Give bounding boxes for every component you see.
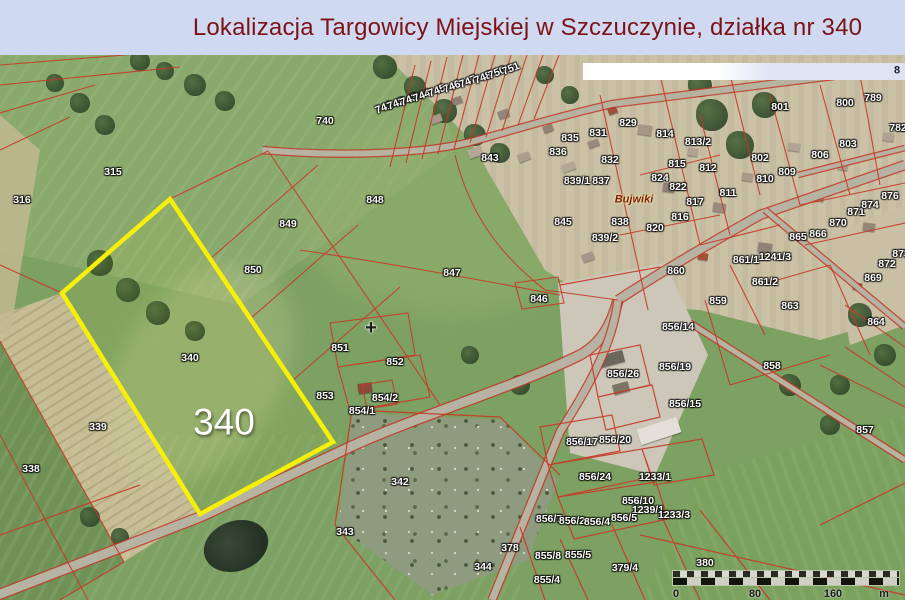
parcel-label: 817 <box>686 197 704 208</box>
parcel-label: 813/2 <box>685 137 711 148</box>
parcel-label: 856/24 <box>579 472 611 483</box>
parcel-label: 342 <box>391 477 409 488</box>
parcel-label: 751 <box>501 61 521 77</box>
parcel-label: 856/4 <box>584 517 610 528</box>
parcel-label: 856/26 <box>607 369 639 380</box>
parcel-label: 740 <box>316 116 334 127</box>
parcel-label: 846 <box>530 294 548 305</box>
parcel-label: 832 <box>601 155 619 166</box>
parcel-label: 874 <box>861 200 879 211</box>
place-label: Bujwiki <box>615 195 654 206</box>
parcel-label: 856/2 <box>559 516 585 527</box>
parcel-label: 861/1 <box>733 255 759 266</box>
parcel-label: 856/15 <box>669 399 701 410</box>
parcel-label: 864 <box>867 317 885 328</box>
parcel-label: 856/14 <box>662 322 694 333</box>
parcel-label: 814 <box>656 129 674 140</box>
parcel-label: 854/2 <box>372 393 398 404</box>
parcel-label: 339 <box>89 422 107 433</box>
parcel-label: 856/5 <box>611 513 637 524</box>
parcel-label: 812 <box>699 163 717 174</box>
parcel-label: 837 <box>592 176 610 187</box>
parcel-label: 858 <box>763 361 781 372</box>
survey-cross: + <box>365 318 377 338</box>
parcel-label: 344 <box>474 562 492 573</box>
scale-tick-label: 80 <box>749 588 761 600</box>
parcel-label: 810 <box>756 174 774 185</box>
parcel-label: 855/8 <box>535 551 561 562</box>
parcel-label: 860 <box>667 266 685 277</box>
parcel-label: 851 <box>331 343 349 354</box>
parcel-label: 782 <box>889 123 905 134</box>
parcel-label: 856/17 <box>566 437 598 448</box>
parcel-label: 849 <box>279 219 297 230</box>
parcel-label: 847 <box>443 268 461 279</box>
parcel-label: 845 <box>554 217 572 228</box>
parcel-label: 809 <box>778 167 796 178</box>
parcel-label: 824 <box>651 173 669 184</box>
parcel-label: 338 <box>22 464 40 475</box>
parcel-label: 815 <box>668 159 686 170</box>
parcel-label: 861/2 <box>752 277 778 288</box>
parcel-label: 379/4 <box>612 563 638 574</box>
parcel-label: 1233/3 <box>658 510 690 521</box>
scale-tick-label: 160 <box>824 588 842 600</box>
parcel-label: 316 <box>13 195 31 206</box>
parcel-label: 789 <box>864 93 882 104</box>
parcel-label: 378 <box>501 543 519 554</box>
parcel-label: 854/1 <box>349 406 375 417</box>
scale-bar <box>672 570 900 586</box>
parcel-label: 853 <box>316 391 334 402</box>
parcel-label: 865 <box>789 232 807 243</box>
parcel-label: 822 <box>669 182 687 193</box>
parcel-label: 836 <box>549 147 567 158</box>
parcel-label: 856/20 <box>599 435 631 446</box>
parcel-label: 870 <box>829 218 847 229</box>
scale-bar-coarse-ticks <box>673 578 899 585</box>
parcel-label: 838 <box>611 217 629 228</box>
parcel-label: 802 <box>751 153 769 164</box>
parcel-label: 315 <box>104 167 122 178</box>
parcel-label: 340 <box>181 353 199 364</box>
parcel-label: 863 <box>781 301 799 312</box>
parcel-label: 859 <box>709 296 727 307</box>
scale-tick-label: 0 <box>673 588 679 600</box>
parcel-label: 1233/1 <box>639 472 671 483</box>
white-overlay-bar: 8 <box>583 63 905 80</box>
screenshot-root: Lokalizacja Targowicy Miejskiej w Szczuc… <box>0 0 905 600</box>
clipped-parcel-digit: 8 <box>894 66 900 77</box>
parcel-label: 803 <box>839 139 857 150</box>
parcel-label: 806 <box>811 150 829 161</box>
parcel-label: 855/4 <box>534 575 560 586</box>
page-title: Lokalizacja Targowicy Miejskiej w Szczuc… <box>193 14 862 42</box>
scale-unit-label: m <box>879 588 889 600</box>
parcel-label: 816 <box>671 212 689 223</box>
parcel-label: 852 <box>386 357 404 368</box>
parcel-label: 801 <box>771 102 789 113</box>
parcel-label: 800 <box>836 98 854 109</box>
parcel-label: 856/19 <box>659 362 691 373</box>
title-bar: Lokalizacja Targowicy Miejskiej w Szczuc… <box>0 0 905 55</box>
parcel-label: 839/1 <box>564 176 590 187</box>
parcel-label: 343 <box>336 527 354 538</box>
parcel-label: 876 <box>881 191 899 202</box>
parcel-label: 873 <box>892 249 905 260</box>
parcel-label: 835 <box>561 133 579 144</box>
scale-bar-fine-ticks <box>673 571 899 577</box>
parcel-labels-layer: 315316740849850848843847846851852853854/… <box>0 55 905 600</box>
parcel-label: 839/2 <box>592 233 618 244</box>
parcel-label: 857 <box>856 425 874 436</box>
map-image: 315316740849850848843847846851852853854/… <box>0 55 905 600</box>
parcel-label: 866 <box>809 229 827 240</box>
parcel-label: 869 <box>864 273 882 284</box>
parcel-label: 829 <box>619 118 637 129</box>
parcel-label: 831 <box>589 128 607 139</box>
parcel-label: 872 <box>878 259 896 270</box>
parcel-label: 811 <box>720 188 737 199</box>
parcel-label: 843 <box>481 153 499 164</box>
parcel-label: 855/5 <box>565 550 591 561</box>
parcel-label: 1241/3 <box>759 252 791 263</box>
parcel-label: 820 <box>646 223 664 234</box>
parcel-label: 340 <box>193 404 255 441</box>
parcel-label: 380 <box>696 558 714 569</box>
parcel-label: 850 <box>244 265 262 276</box>
parcel-label: 848 <box>366 195 384 206</box>
